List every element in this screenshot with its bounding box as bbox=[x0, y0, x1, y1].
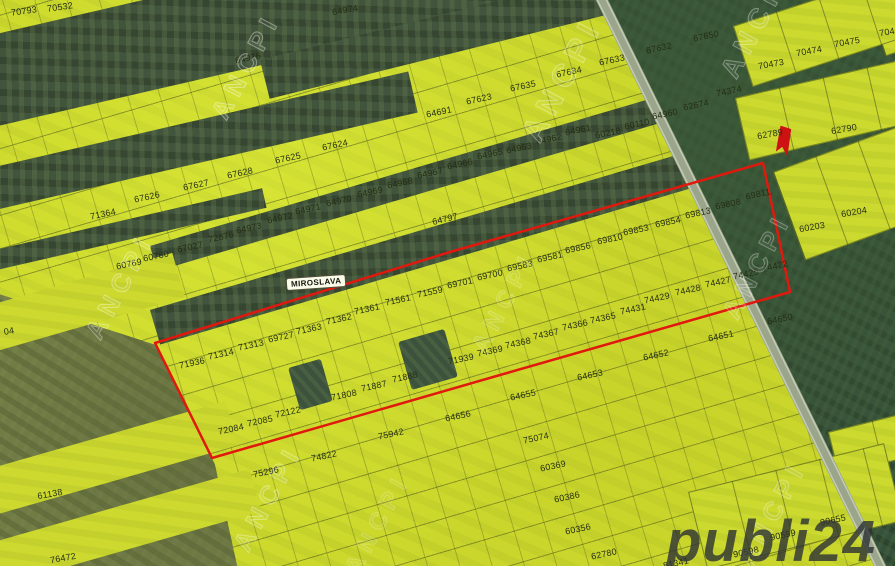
ancpi-watermark: ANCPI bbox=[514, 12, 610, 148]
ancpi-watermark: ANCPI bbox=[716, 208, 798, 325]
ancpi-watermark: ANCPI bbox=[714, 0, 800, 83]
ancpi-watermark: ANCPI bbox=[340, 469, 416, 566]
ancpi-watermark: ANCPI bbox=[227, 440, 309, 557]
ancpi-watermark: ANCPI bbox=[205, 8, 287, 125]
ancpi-watermark: ANCPI bbox=[79, 228, 161, 345]
ancpi-watermark: ANCPI bbox=[467, 247, 543, 357]
publi24-watermark: publi24 bbox=[666, 508, 876, 566]
map-canvas[interactable]: MIROSLAVA 707937053264974649766765067632… bbox=[0, 0, 895, 566]
watermark-layer: ANCPIANCPIANCPIANCPIANCPIANCPIANCPIANCPI… bbox=[0, 0, 895, 566]
